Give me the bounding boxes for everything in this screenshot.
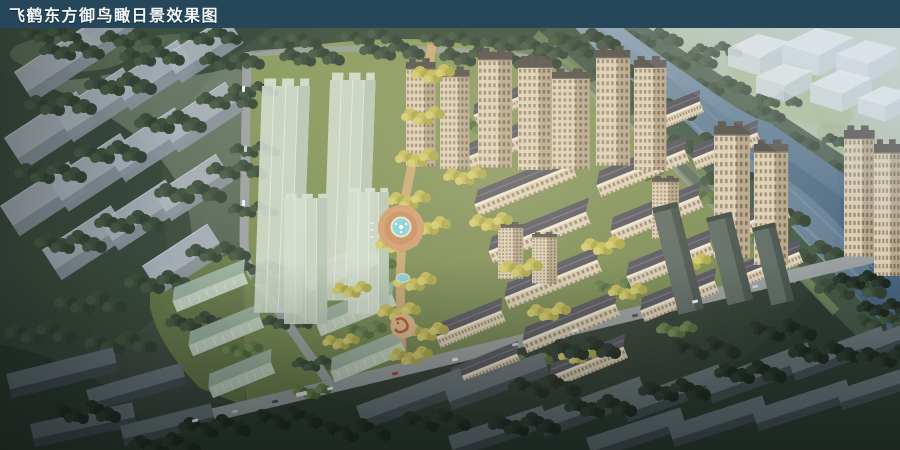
title-bar: 飞鹤东方御鸟瞰日景效果图 (0, 0, 900, 28)
rendering-page: 飞鹤东方御鸟瞰日景效果图 (0, 0, 900, 450)
lighting-overlays (0, 28, 900, 450)
aerial-render (0, 28, 900, 450)
page-title: 飞鹤东方御鸟瞰日景效果图 (9, 2, 219, 26)
